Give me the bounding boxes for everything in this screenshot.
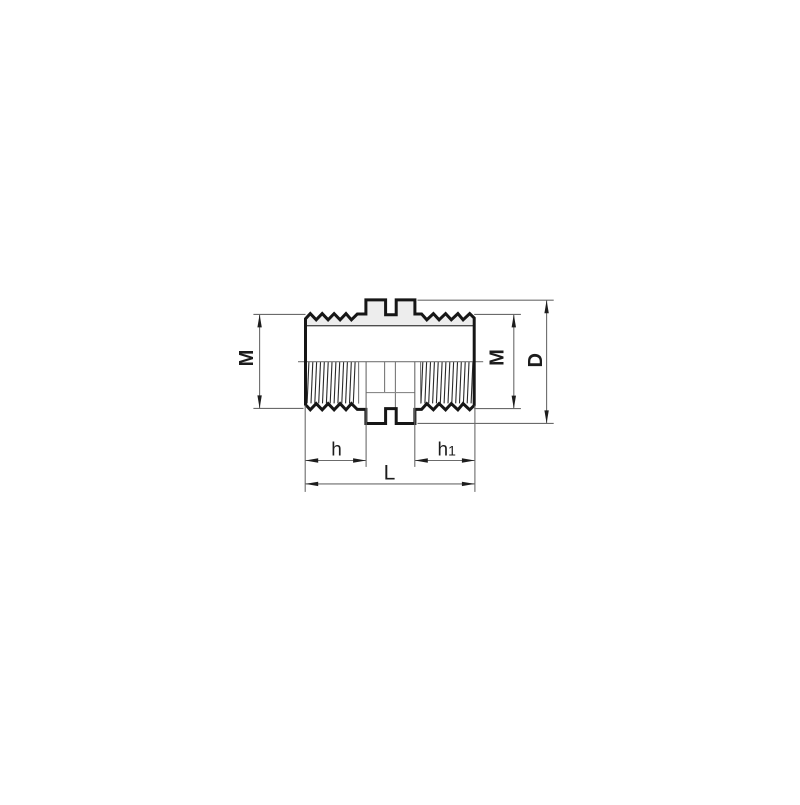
svg-text:L: L: [384, 461, 396, 484]
svg-text:D: D: [525, 353, 547, 367]
svg-text:h: h: [331, 439, 342, 460]
svg-text:h1: h1: [438, 439, 457, 460]
svg-text:M: M: [236, 350, 258, 367]
svg-text:M: M: [487, 349, 509, 366]
